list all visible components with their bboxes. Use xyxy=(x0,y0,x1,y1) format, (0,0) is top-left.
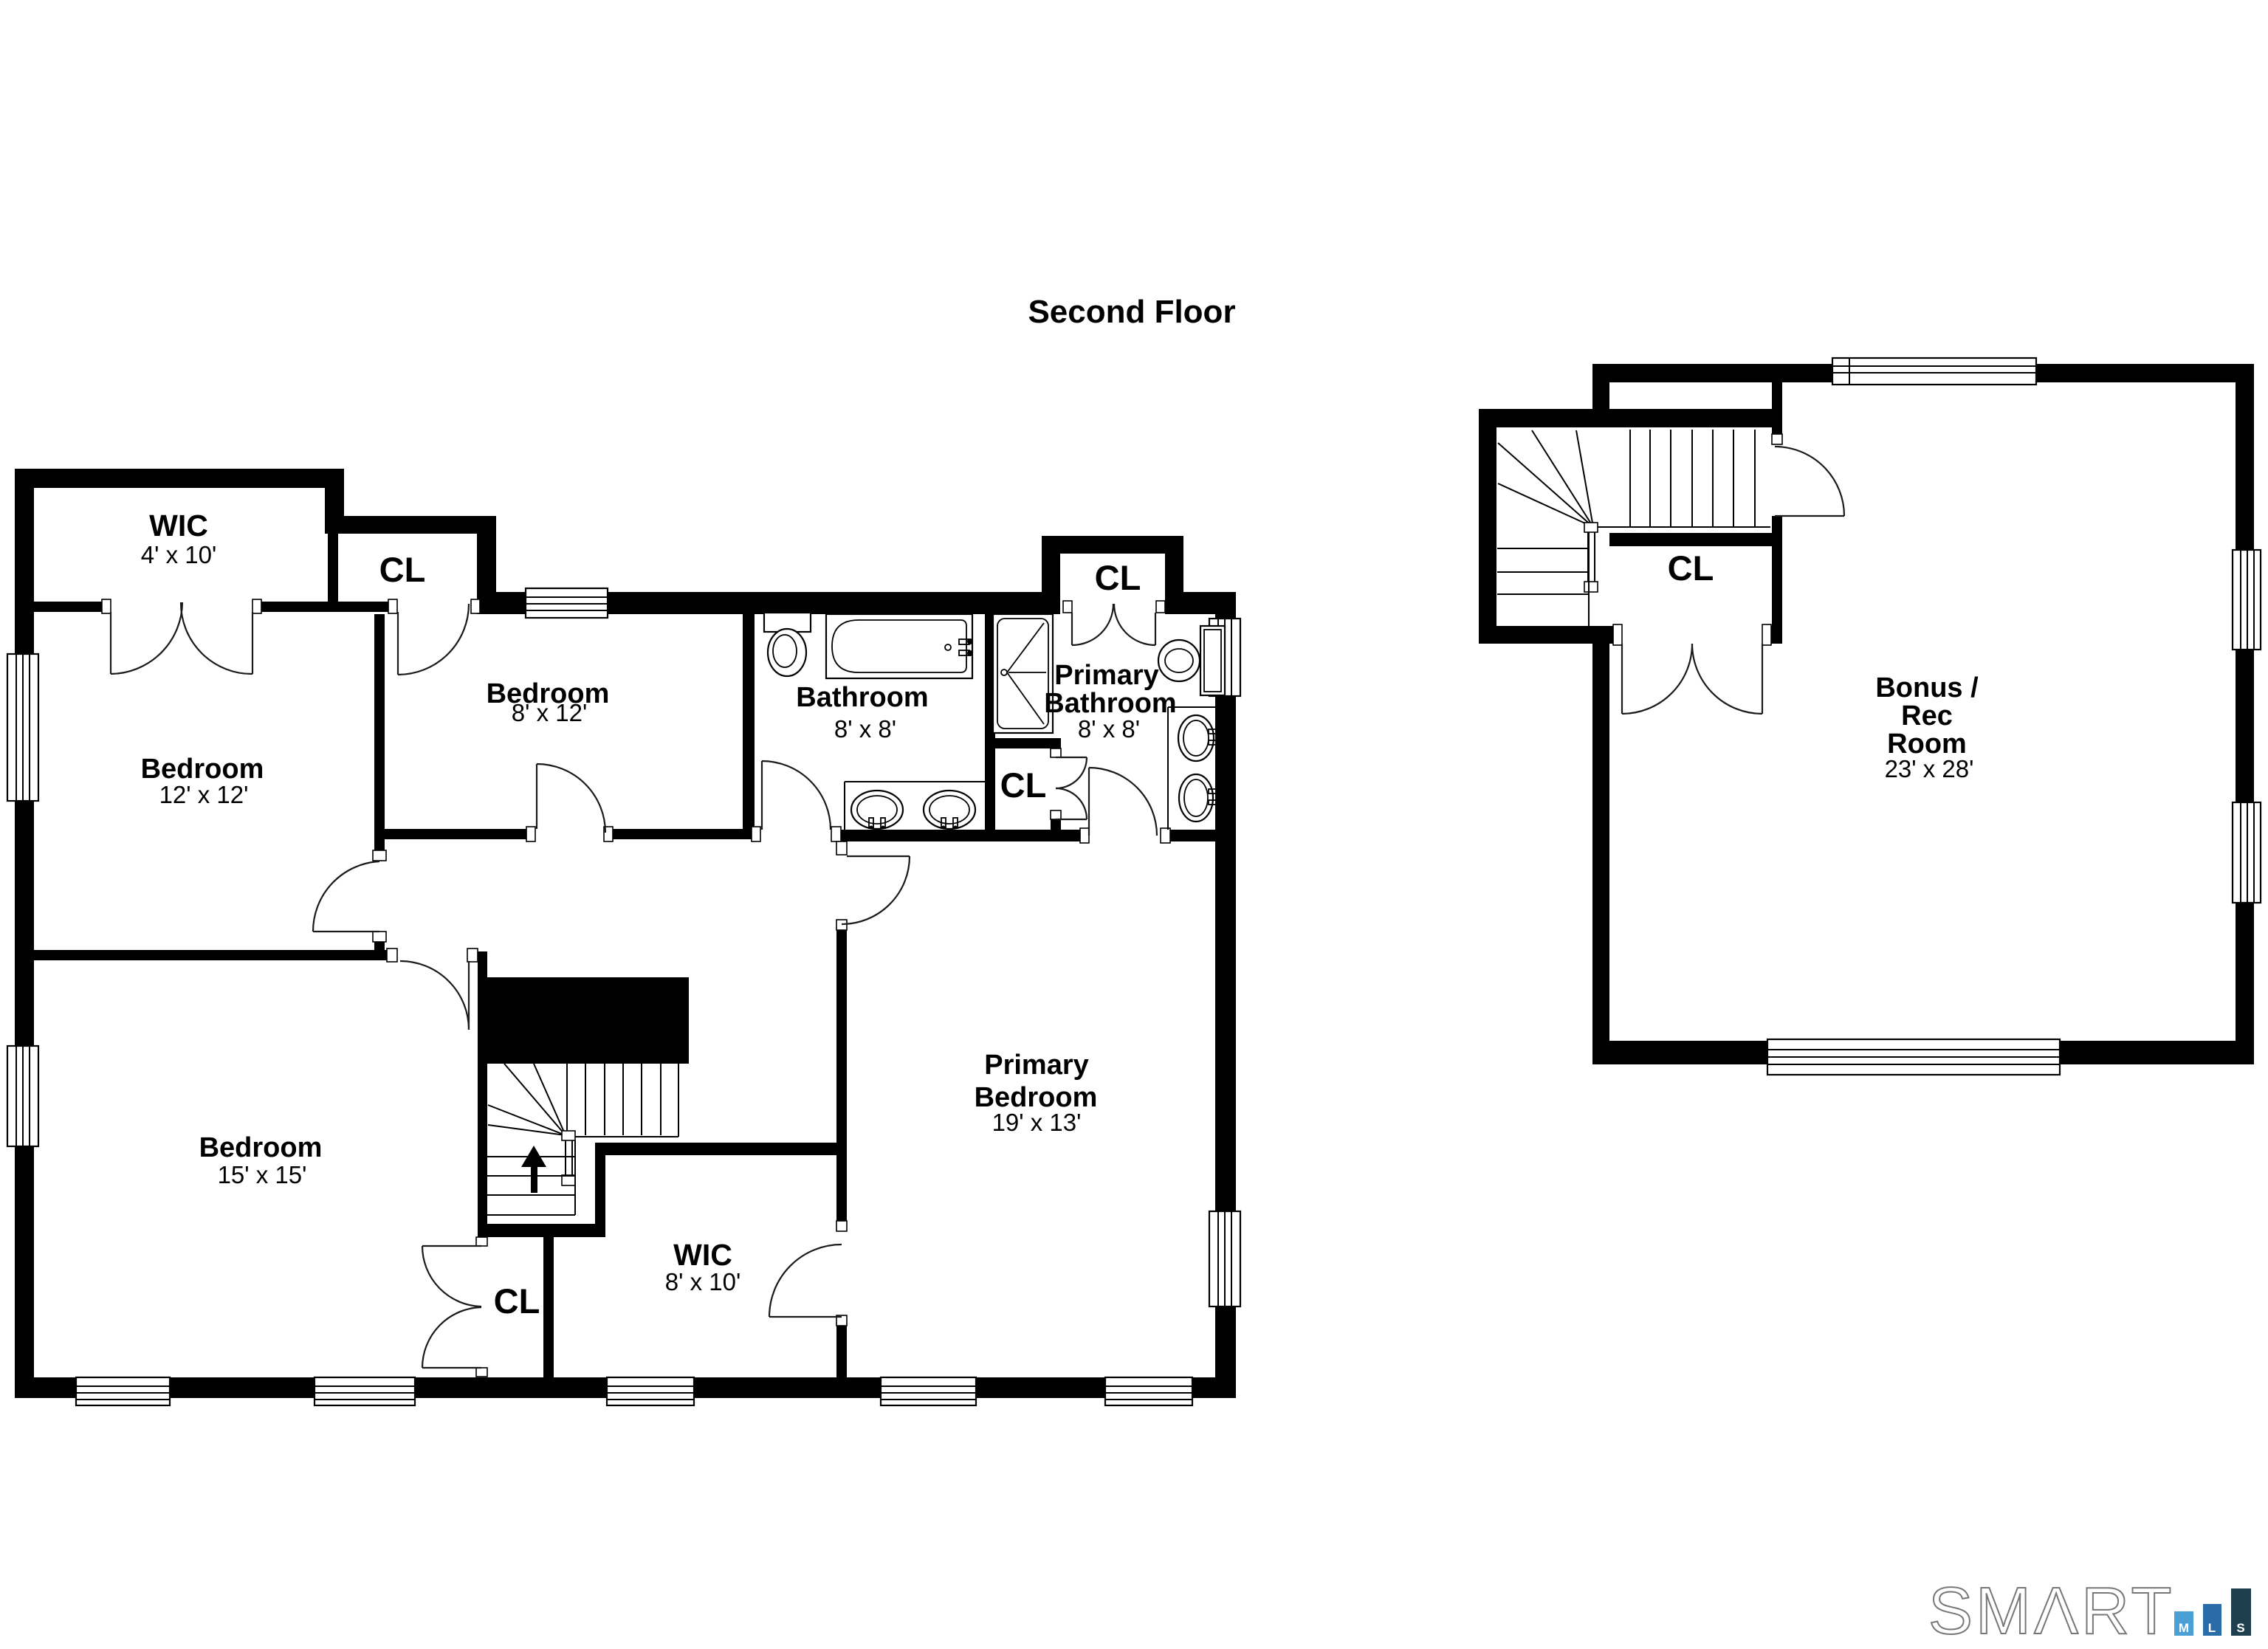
svg-text:8' x 8': 8' x 8' xyxy=(1078,715,1140,743)
svg-text:Primary: Primary xyxy=(984,1050,1089,1081)
svg-text:Bedroom: Bedroom xyxy=(141,754,264,785)
svg-text:15' x 15': 15' x 15' xyxy=(218,1161,307,1188)
svg-text:Rec: Rec xyxy=(1901,700,1953,731)
svg-text:SMΛRT: SMΛRT xyxy=(1928,1574,2174,1648)
svg-text:4' x 10': 4' x 10' xyxy=(141,541,217,568)
svg-text:8' x 12': 8' x 12' xyxy=(512,699,588,726)
svg-text:Bathroom: Bathroom xyxy=(1044,688,1176,719)
svg-text:CL: CL xyxy=(1095,558,1141,597)
svg-text:L: L xyxy=(2208,1621,2216,1635)
svg-text:WIC: WIC xyxy=(673,1238,732,1272)
svg-text:12' x 12': 12' x 12' xyxy=(159,781,249,808)
svg-text:Bedroom: Bedroom xyxy=(199,1132,323,1163)
svg-text:CL: CL xyxy=(1000,765,1047,805)
svg-text:Bonus /: Bonus / xyxy=(1875,672,1979,703)
svg-text:19' x 13': 19' x 13' xyxy=(992,1109,1082,1136)
svg-text:8' x 10': 8' x 10' xyxy=(665,1268,741,1295)
svg-text:Primary: Primary xyxy=(1054,660,1159,691)
svg-text:M: M xyxy=(2179,1621,2189,1635)
svg-text:CL: CL xyxy=(494,1281,540,1321)
svg-text:CL: CL xyxy=(1668,548,1714,588)
svg-text:WIC: WIC xyxy=(149,509,208,543)
svg-text:8' x 8': 8' x 8' xyxy=(834,715,896,743)
svg-text:CL: CL xyxy=(379,550,426,589)
svg-text:23' x 28': 23' x 28' xyxy=(1885,755,1974,782)
svg-text:Bathroom: Bathroom xyxy=(796,682,928,713)
svg-text:Second Floor: Second Floor xyxy=(1028,294,1235,330)
svg-text:S: S xyxy=(2236,1621,2244,1635)
